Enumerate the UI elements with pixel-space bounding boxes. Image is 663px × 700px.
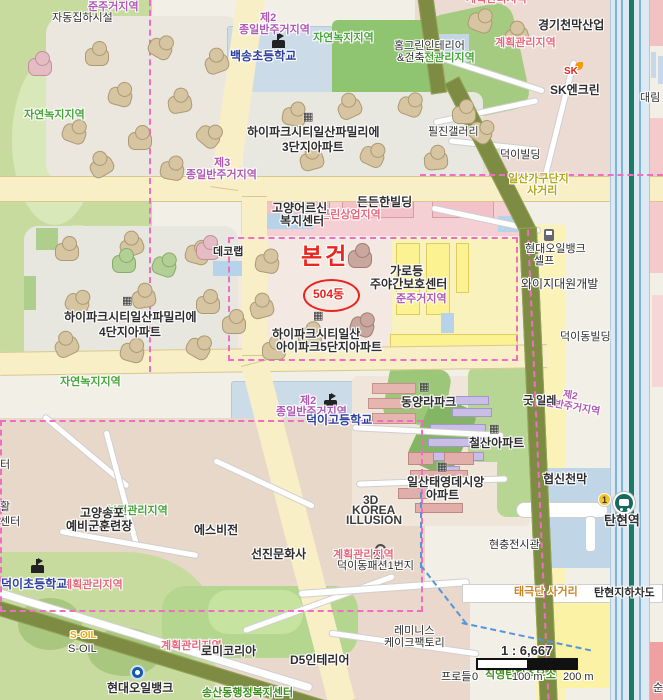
- poi-label-d5-interior[interactable]: D5인테리어: [290, 654, 350, 668]
- poi-label-deokyi-elementary[interactable]: 덕이초등학교: [1, 578, 67, 592]
- poi-label-yg-daewon[interactable]: 와이지대원개발: [521, 278, 598, 292]
- apartment-building-shape: [348, 250, 372, 268]
- zone-label-gyehoek: 계획관리지역: [466, 0, 527, 6]
- poi-label-hipark4-2[interactable]: 4단지아파트: [99, 326, 161, 340]
- poi-label-gyeonggi-tent[interactable]: 경기천막산업: [538, 19, 604, 33]
- poi-label-piljin-gallery[interactable]: 필진갤러리: [428, 126, 479, 139]
- poi-label-partial: 터: [0, 459, 10, 472]
- hyundai-oilbank-logo: [130, 665, 145, 680]
- poi-label-tanhyeon-station[interactable]: 탄현역: [604, 514, 640, 529]
- map-canvas[interactable]: ▦ ▦ ▦ ▦ ▦ ▦ 1 준주거지역 제2 종일반주거지역 자연녹지지역 자연…: [0, 0, 663, 700]
- apartment-building-shape: [85, 48, 109, 66]
- apartment-building-shape: [150, 254, 179, 279]
- apartment-building-shape: [167, 93, 194, 115]
- apartment-building-shape: [106, 85, 134, 109]
- poi-label-sk-logo: SK: [564, 66, 578, 78]
- road-vertical-center: [242, 196, 267, 356]
- poi-label-hyundai-oilbank-self2[interactable]: 셀프: [534, 255, 554, 268]
- apartment-icon: ▦: [303, 111, 313, 124]
- zone-label-junju-center: 준주거지역: [396, 293, 447, 306]
- road-label-underpass: 탄현지하차도: [594, 587, 655, 600]
- scale-tick-100: 100 m: [512, 671, 543, 684]
- poi-label-dndn-building[interactable]: 든든한빌딩: [357, 196, 412, 210]
- subject-unit-label: 504동: [313, 288, 344, 302]
- zone-label-green: 자연녹지지역: [60, 376, 121, 389]
- poi-label-good[interactable]: 굿 일레: [523, 395, 556, 408]
- subject-property-label: 본건: [301, 243, 349, 269]
- poi-label-deokyidong-building[interactable]: 덕이동빌딩: [560, 331, 611, 344]
- poi-label-baeksong-elementary[interactable]: 백송초등학교: [230, 50, 296, 64]
- zone-label-j2: 종일반주거지역: [239, 24, 310, 37]
- poi-label-taeyoung2[interactable]: 아파트: [426, 489, 459, 503]
- gas-station-icon: [544, 229, 554, 241]
- zone-label-j3: 종일반주거지역: [186, 169, 257, 182]
- poi-label-hyundai-oilbank-bottom[interactable]: 현대오일뱅크: [107, 682, 173, 696]
- poi-label-songpo2[interactable]: 예비군훈련장: [66, 520, 132, 534]
- poi-label-reminis[interactable]: 레미니스: [394, 625, 434, 638]
- poi-label-hipark3[interactable]: 하이파크시티일산파밀리에: [247, 126, 379, 140]
- apartment-building-shape: [60, 121, 89, 146]
- school-icon: [31, 565, 44, 573]
- road: [585, 516, 596, 552]
- zone-label-gyehoek: 계획관리지역: [62, 579, 123, 592]
- road-tanhyeon: [516, 502, 608, 518]
- apartment-building-shape: [196, 296, 220, 314]
- apartment-building-shape: [55, 243, 79, 261]
- poi-label-cheolsan-apt[interactable]: 철산아파트: [469, 437, 524, 451]
- poi-label-dongyang[interactable]: 동양라파크: [401, 396, 456, 410]
- poi-label-waste-facility[interactable]: 자동집하시설: [52, 12, 113, 25]
- school-icon: [272, 40, 285, 48]
- poi-label-fashion1beonji[interactable]: 덕이동패션1번지: [337, 560, 414, 573]
- apartment-building-shape: [112, 255, 136, 273]
- poi-label-hipark4[interactable]: 하이파크시티일산파밀리에: [64, 311, 196, 325]
- poi-label-garodeung2[interactable]: 주야간보호센터: [370, 278, 447, 292]
- apartment-icon: ▦: [419, 381, 429, 394]
- poi-label-songsan-center[interactable]: 송산동행정복지센터: [202, 687, 293, 700]
- poi-label-decolab[interactable]: 데코랩: [213, 246, 243, 259]
- apartment-building-shape: [131, 288, 158, 310]
- poi-label-partial: 순: [653, 682, 663, 695]
- apartment-building-shape: [128, 132, 152, 150]
- subway-line-badge: 1: [598, 493, 611, 506]
- poi-label-deokyi-high-school[interactable]: 덕이고등학교: [306, 414, 372, 428]
- apartment-building-shape: [28, 58, 52, 76]
- poi-label-prodeul[interactable]: 프로들: [441, 671, 471, 684]
- zone-label-geunrin: 근린상업지역: [320, 209, 381, 222]
- poi-label-illusion-3[interactable]: ILLUSION: [346, 514, 402, 528]
- poi-label-romikorea[interactable]: 로미코리아: [201, 645, 256, 659]
- apartment-building-shape: [423, 151, 448, 171]
- apartment-icon: ▦: [313, 310, 323, 323]
- scale-bar: [476, 658, 578, 670]
- apartment-building-shape: [466, 10, 495, 35]
- poi-label-daelim[interactable]: 대림: [640, 92, 660, 105]
- poi-label-hipark3-2[interactable]: 3단지아파트: [282, 141, 344, 155]
- poi-label-homegreen[interactable]: 홈그린인테리어: [394, 40, 465, 53]
- apartment-icon: ▦: [437, 461, 447, 474]
- poi-label-seonjin[interactable]: 선진문화사: [251, 548, 306, 562]
- apartment-building-shape: [335, 96, 364, 122]
- poi-label-reminis2[interactable]: 케이크팩토리: [384, 637, 445, 650]
- apartment-icon: ▦: [489, 423, 499, 436]
- road-label-taegeuk-junction: 태극단 사거리: [514, 586, 578, 599]
- poi-label-partial: 센터: [0, 516, 20, 529]
- poi-label-hyupsin[interactable]: 협신천막: [543, 473, 587, 487]
- poi-label-elder-center2[interactable]: 복지센터: [280, 215, 324, 229]
- apartment-building-shape: [357, 144, 386, 170]
- poi-label-hyeonchung[interactable]: 현충전시관: [489, 539, 540, 552]
- poi-label-sk-encrin[interactable]: SK엔크린: [550, 84, 600, 98]
- scale-tick-200: 200 m: [563, 671, 594, 684]
- poi-label-partial: 활: [0, 501, 10, 514]
- poi-label-hipark5-2[interactable]: 아이파크5단지아파트: [276, 341, 382, 355]
- poi-label-homegreen2[interactable]: &건축: [397, 52, 425, 65]
- poi-label-esvision[interactable]: 에스비전: [194, 524, 238, 538]
- apartment-building-shape: [396, 94, 425, 119]
- zone-label-j3-no: 제3: [214, 157, 230, 170]
- road-label-furniture-junction2: 사거리: [527, 185, 557, 198]
- scale-ratio: 1 : 6,667: [501, 644, 552, 659]
- zone-label-gyehoek: 계획관리지역: [495, 37, 556, 50]
- poi-label-soil-logo: S-OIL: [70, 630, 97, 642]
- zone-label-green: 자연녹지지역: [313, 32, 374, 45]
- apartment-icon: ▦: [122, 295, 132, 308]
- road-label-furniture-junction: 일산가구단지: [508, 173, 569, 186]
- apartment-building-shape: [222, 316, 246, 334]
- station-icon[interactable]: [613, 492, 635, 514]
- apartment-building-shape: [145, 35, 175, 63]
- zone-label-j2-no: 제2: [260, 12, 276, 25]
- scale-tick-0: 0: [472, 671, 478, 684]
- poi-label-soil[interactable]: S-OIL: [68, 643, 97, 656]
- zone-label-green: 자연녹지지역: [24, 109, 85, 122]
- poi-label-deokyi-building[interactable]: 덕이빌딩: [500, 149, 540, 162]
- poi-label-hyundai-oilbank-self[interactable]: 현대오일뱅크: [525, 243, 586, 256]
